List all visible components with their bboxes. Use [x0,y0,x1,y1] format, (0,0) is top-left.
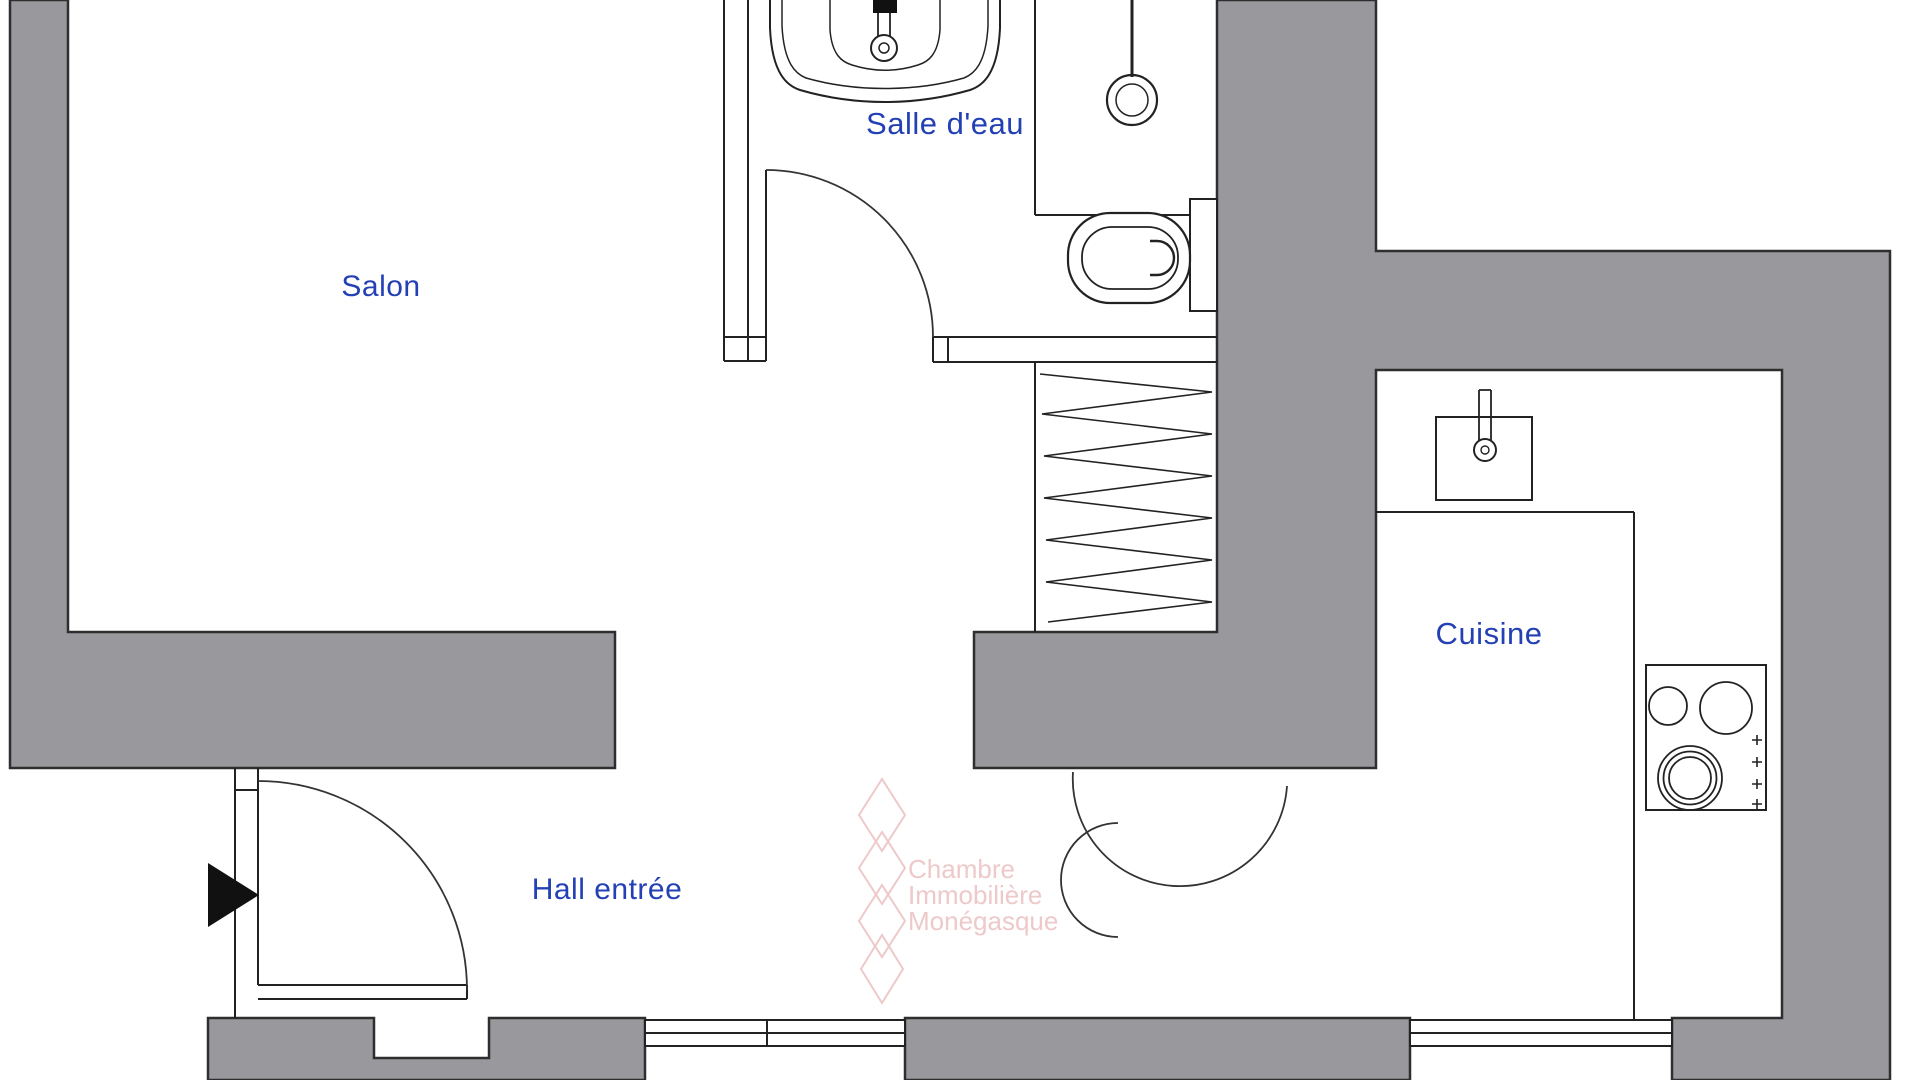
wall-salon [10,0,615,768]
floor-plan: Salon Salle d'eau Cuisine Hall entrée Ch… [0,0,1920,1080]
kitchen-sink [1436,390,1532,500]
wall-central-right [974,0,1890,1080]
room-label-cuisine: Cuisine [1436,616,1543,652]
cooktop [1646,665,1766,810]
entry-door-arc [258,781,467,990]
watermark-logo-icon [859,779,905,1003]
bathroom-door-arc [766,170,933,337]
partition-bathroom-left [724,0,766,361]
watermark-line-3: Monégasque [908,908,1058,934]
wall-bottom-middle [905,1018,1410,1080]
watermark-text: Chambre Immobilière Monégasque [908,856,1058,934]
watermark-line-1: Chambre [908,856,1058,882]
kitchen-counter-edge [1376,512,1634,1020]
watermark-line-2: Immobilière [908,882,1058,908]
room-label-salle-deau: Salle d'eau [866,106,1024,142]
window-hall [645,1020,905,1046]
kitchen-door-arc-small [1061,823,1118,937]
window-kitchen [1410,1020,1672,1046]
faucet [871,35,897,61]
shower-tray-edge [1035,0,1217,215]
wall-bottom-hall [208,1018,645,1080]
partition-bathroom-bottom [933,337,1217,362]
entry-arrow-icon [208,863,259,927]
closet-hatch [1040,374,1212,622]
entry-door-frame [235,768,467,1018]
shower-drain [1107,0,1157,125]
kitchen-door-arc-large [1073,772,1287,886]
vanity-sink [770,0,1000,102]
faucet-valve [873,0,897,13]
room-label-salon: Salon [341,270,420,304]
room-label-hall-entree: Hall entrée [532,873,683,907]
toilet-cistern [1190,199,1217,311]
